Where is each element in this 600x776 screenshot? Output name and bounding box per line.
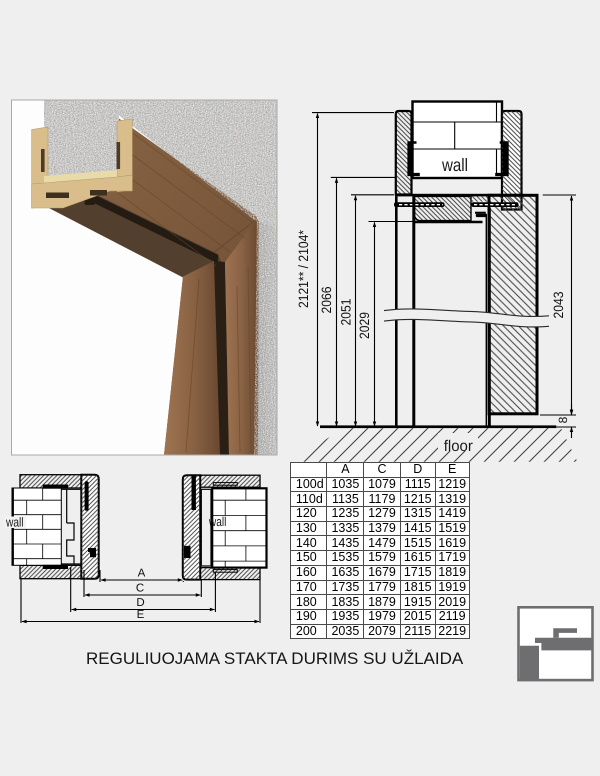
- svg-text:floor: floor: [444, 438, 473, 455]
- svg-text:2051: 2051: [339, 299, 354, 326]
- svg-text:wall: wall: [5, 515, 23, 530]
- svg-text:2121** / 2104*: 2121** / 2104*: [296, 229, 311, 308]
- svg-text:C: C: [136, 583, 144, 595]
- svg-text:2043: 2043: [551, 292, 566, 319]
- svg-text:8: 8: [556, 416, 570, 423]
- svg-text:E: E: [137, 609, 145, 621]
- svg-text:2066: 2066: [319, 287, 334, 314]
- svg-text:A: A: [138, 568, 146, 580]
- svg-text:wall: wall: [441, 155, 468, 175]
- svg-text:D: D: [136, 597, 144, 609]
- svg-text:2029: 2029: [357, 312, 372, 339]
